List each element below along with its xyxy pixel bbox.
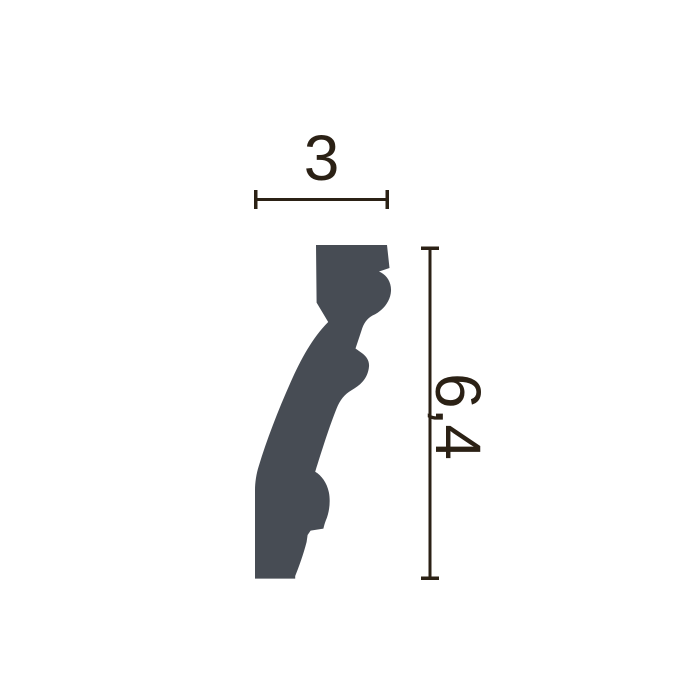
moulding-profile-silhouette bbox=[255, 245, 391, 579]
width-dimension-rule bbox=[254, 198, 389, 201]
drawing-canvas bbox=[0, 0, 700, 700]
height-dimension-label: 6,4 bbox=[426, 373, 490, 459]
product-dimension-drawing: 3 6,4 bbox=[0, 0, 700, 700]
width-dimension-label: 3 bbox=[304, 126, 339, 190]
